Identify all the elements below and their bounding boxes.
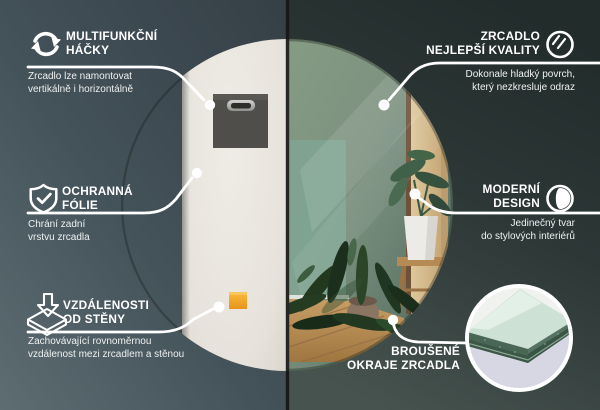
distance-dot [214, 302, 225, 313]
callout-quality-title: ZRCADLONEJLEPŠÍ KVALITY [426, 29, 540, 57]
callout-hooks-description: Zrcadlo lze namontovatvertikálně i horiz… [28, 71, 133, 96]
callout-distance-description: Zachovávající rovnoměrnouvzdálenost mezi… [28, 336, 184, 361]
hooks-dot [205, 100, 215, 110]
callout-edges: BROUŠENÉOKRAJE ZRCADLA [347, 344, 460, 372]
foil-dot [192, 168, 202, 178]
infographic: MULTIFUNKČNÍHÁČKY Zrcadlo lze namontovat… [0, 0, 600, 410]
callout-hooks-title: MULTIFUNKČNÍHÁČKY [66, 29, 157, 57]
callout-distance-title: VZDÁLENOSTIOD STĚNY [63, 298, 149, 326]
callout-design-title: MODERNÍDESIGN [483, 182, 540, 210]
callout-design-description: Jedinečný tvardo stylových interiérů [481, 218, 575, 243]
quality-dot [379, 100, 390, 111]
callout-foil: OCHRANNÁFÓLIE [62, 184, 133, 212]
edges-dot [388, 315, 398, 325]
callout-quality-description: Dokonale hladký povrch,který nezkresluje… [465, 69, 575, 94]
callout-distance: VZDÁLENOSTIOD STĚNY [63, 298, 149, 326]
callout-quality: ZRCADLONEJLEPŠÍ KVALITY [426, 29, 540, 57]
callout-hooks: MULTIFUNKČNÍHÁČKY [66, 29, 157, 57]
callout-edges-title: BROUŠENÉOKRAJE ZRCADLA [347, 344, 460, 372]
callout-foil-description: Chrání zadnívrstvu zrcadla [28, 219, 90, 244]
callout-design: MODERNÍDESIGN [483, 182, 540, 210]
callout-foil-title: OCHRANNÁFÓLIE [62, 184, 133, 212]
split-divider-line [286, 0, 289, 410]
design-dot [410, 189, 421, 200]
hook-pad [213, 94, 268, 148]
wall-spacer [229, 292, 247, 309]
